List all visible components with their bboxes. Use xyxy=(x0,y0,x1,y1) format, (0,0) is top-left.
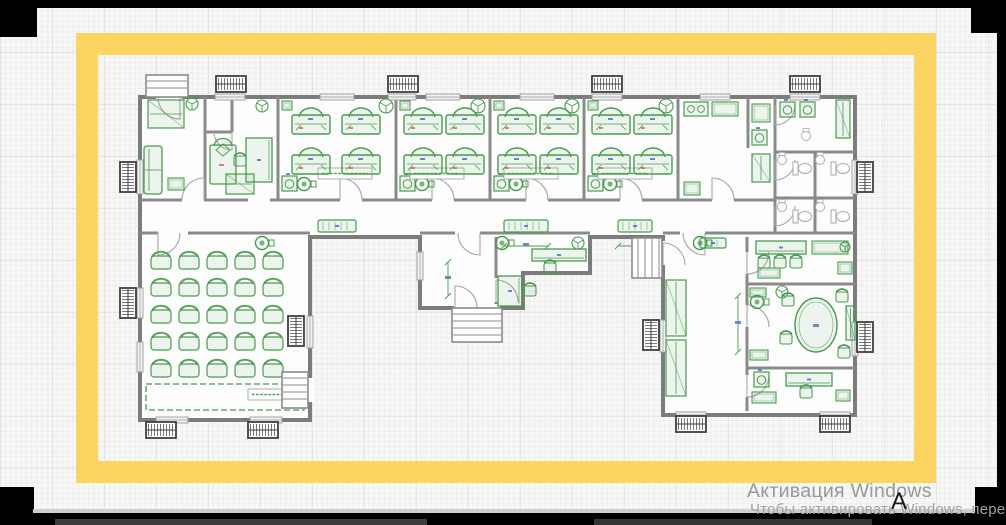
hall-chair xyxy=(235,310,255,323)
dim-mark xyxy=(508,290,512,292)
hall-chair xyxy=(235,283,255,296)
letterbox-bar xyxy=(594,519,872,525)
sink xyxy=(778,156,787,165)
chair xyxy=(790,258,802,268)
dim-mark xyxy=(219,164,224,166)
bed xyxy=(446,155,484,174)
dim-mark xyxy=(349,127,353,129)
dim-mark xyxy=(358,158,363,160)
bed xyxy=(292,115,330,134)
letterbox-bar xyxy=(0,0,1006,8)
dim-mark xyxy=(514,118,519,120)
bed xyxy=(404,115,442,134)
dim-mark xyxy=(308,158,313,160)
round-unit-core xyxy=(607,181,612,186)
toilet-bowl xyxy=(837,212,850,222)
stairs xyxy=(632,238,662,278)
chair xyxy=(234,156,246,166)
chair xyxy=(524,286,536,296)
dim-mark xyxy=(462,158,467,160)
hall-chair xyxy=(179,310,199,323)
table xyxy=(758,268,780,278)
sink-tap xyxy=(803,129,809,132)
dim-mark xyxy=(358,118,363,120)
dim-mark xyxy=(308,118,313,120)
round-unit-core xyxy=(301,181,306,186)
hall-chair xyxy=(263,256,283,269)
dim-mark xyxy=(257,159,261,161)
chair xyxy=(836,292,848,302)
stairs xyxy=(282,372,308,408)
toilet-tank xyxy=(793,210,798,223)
dim-mark xyxy=(547,127,551,129)
bed xyxy=(292,155,330,174)
windows-activation-watermark-subtitle: Чтобы активировать Windows, перей xyxy=(750,501,1006,518)
dim-mark xyxy=(453,127,457,129)
dim-mark xyxy=(711,242,715,244)
hall-chair xyxy=(207,310,227,323)
dim-mark xyxy=(633,225,637,227)
stairs xyxy=(452,308,502,342)
hall-chair xyxy=(207,337,227,350)
bed xyxy=(404,155,442,174)
sink-tap xyxy=(817,200,823,203)
bed xyxy=(498,155,536,174)
sink-tap xyxy=(817,153,823,156)
dim-mark xyxy=(599,127,603,129)
dim-mark xyxy=(335,225,339,227)
table xyxy=(282,101,292,110)
hall-chair xyxy=(207,283,227,296)
sink xyxy=(816,156,825,165)
hall-chair xyxy=(151,310,171,323)
floor-plan-canvas[interactable] xyxy=(0,0,1006,525)
chair xyxy=(780,334,792,344)
table xyxy=(752,104,770,122)
chair xyxy=(544,263,556,273)
dim-mark xyxy=(420,158,425,160)
dim-mark xyxy=(641,127,645,129)
sink-tap xyxy=(779,200,785,203)
toilet-tank xyxy=(831,210,836,223)
table xyxy=(494,101,504,110)
toilet-tank xyxy=(793,162,798,175)
dim-mark xyxy=(556,158,561,160)
hall-chair xyxy=(263,283,283,296)
sink xyxy=(778,203,787,212)
bed xyxy=(540,155,578,174)
letterbox-bar xyxy=(55,519,427,525)
round-unit-core xyxy=(754,299,759,304)
hall-chair xyxy=(179,283,199,296)
dim-mark xyxy=(505,127,509,129)
bed xyxy=(498,115,536,134)
dim-mark xyxy=(349,167,353,169)
dim-mark xyxy=(453,167,457,169)
sink-tap xyxy=(779,153,785,156)
toilet-bowl xyxy=(799,212,812,222)
dimension-value xyxy=(445,276,451,279)
hall-chair xyxy=(151,283,171,296)
dim-mark xyxy=(756,127,760,129)
bed xyxy=(446,115,484,134)
dim-mark xyxy=(608,158,613,160)
dim-mark xyxy=(807,379,811,381)
bed xyxy=(540,115,578,134)
sink xyxy=(802,132,811,141)
bed xyxy=(592,115,630,134)
dim-mark xyxy=(758,369,762,371)
chair xyxy=(838,348,850,358)
hall-chair xyxy=(207,256,227,269)
screenshot-root: Активация Windows Чтобы активировать Win… xyxy=(0,0,1006,525)
dim-mark xyxy=(524,225,528,227)
sink xyxy=(816,203,825,212)
dim-mark xyxy=(599,167,603,169)
stairs xyxy=(146,75,188,97)
bed xyxy=(342,155,380,174)
dim-mark xyxy=(557,254,561,256)
hall-chair xyxy=(151,256,171,269)
dim-mark xyxy=(784,99,788,101)
dim-mark xyxy=(641,167,645,169)
hall-chair xyxy=(263,337,283,350)
dim-mark xyxy=(411,127,415,129)
hall-chair xyxy=(179,337,199,350)
letterbox-bar xyxy=(0,0,37,37)
dimension-value xyxy=(523,243,529,246)
hall-chair xyxy=(151,364,171,377)
round-unit-core xyxy=(259,240,264,245)
bed xyxy=(634,155,672,174)
dim-mark xyxy=(420,118,425,120)
dim-mark xyxy=(286,173,290,175)
hall-chair xyxy=(235,364,255,377)
dim-mark xyxy=(547,167,551,169)
dim-mark xyxy=(411,167,415,169)
bed xyxy=(342,115,380,134)
bed xyxy=(592,155,630,174)
chair xyxy=(774,258,786,268)
dimension-value xyxy=(735,321,741,324)
dim-mark xyxy=(556,118,561,120)
table xyxy=(588,101,598,110)
toilet-bowl xyxy=(837,164,850,174)
round-unit-core xyxy=(499,240,504,245)
dim-mark xyxy=(462,118,467,120)
hall-chair xyxy=(235,337,255,350)
hall-chair xyxy=(179,364,199,377)
dim-mark xyxy=(804,99,808,101)
table xyxy=(750,350,768,360)
hall-chair xyxy=(179,256,199,269)
hall-chair xyxy=(263,364,283,377)
toilet-bowl xyxy=(799,164,812,174)
hall-chair xyxy=(263,310,283,323)
dim-mark xyxy=(505,167,509,169)
dim-mark xyxy=(813,324,819,327)
table xyxy=(400,101,410,110)
dim-mark xyxy=(299,167,303,169)
hall-chair xyxy=(235,256,255,269)
dim-mark xyxy=(608,118,613,120)
toilet-tank xyxy=(831,162,836,175)
chair xyxy=(758,258,770,268)
dim-mark xyxy=(650,158,655,160)
dim-mark xyxy=(514,158,519,160)
hall-chair xyxy=(207,364,227,377)
bed xyxy=(634,115,672,134)
letterbox-bar xyxy=(997,0,1006,525)
hall-chair xyxy=(151,337,171,350)
dim-mark xyxy=(650,118,655,120)
chair xyxy=(800,388,812,398)
round-unit-core xyxy=(513,181,518,186)
dark-overlap-glyph: А xyxy=(891,488,907,516)
table xyxy=(752,392,776,403)
dim-mark xyxy=(779,247,783,249)
dim-mark xyxy=(299,127,303,129)
round-unit-core xyxy=(419,181,424,186)
